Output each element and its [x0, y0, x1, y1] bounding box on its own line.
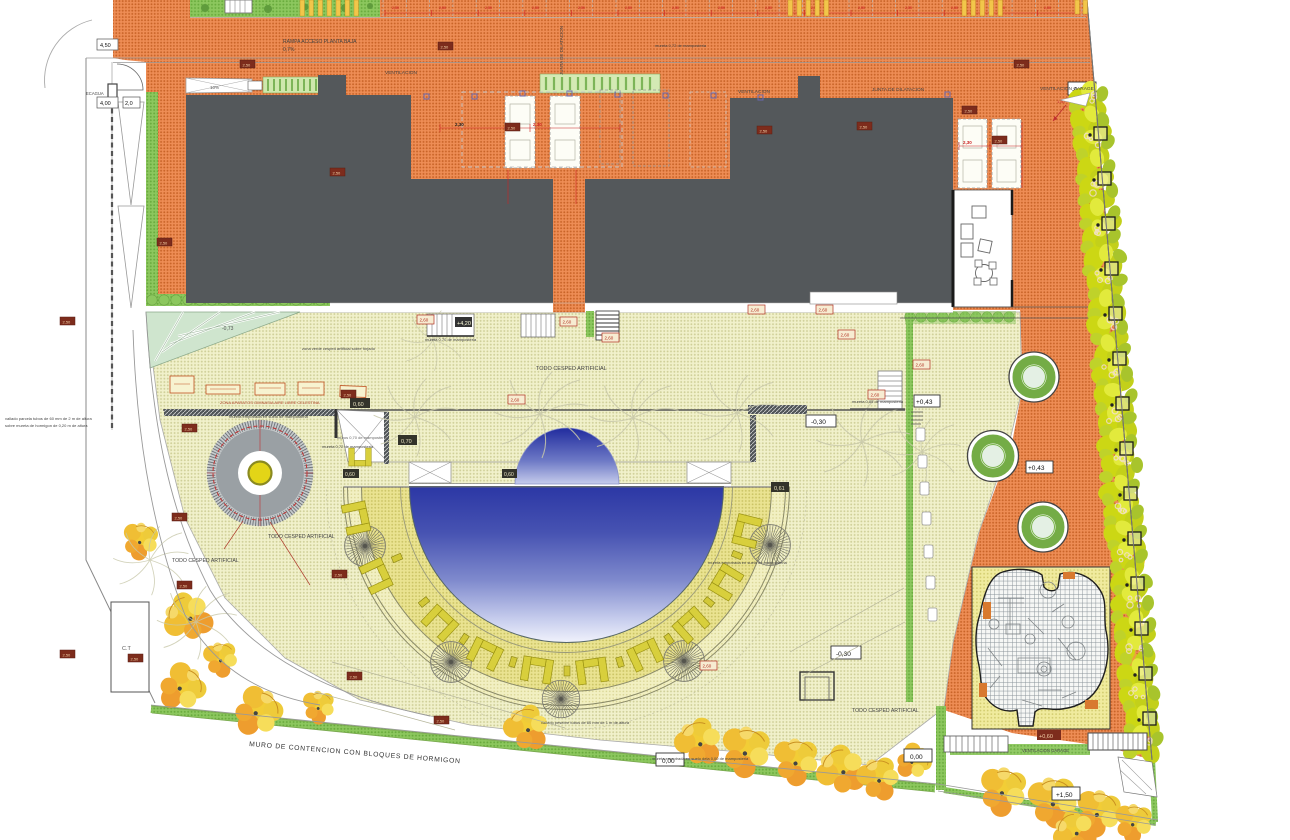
- svg-text:2,30: 2,30: [963, 140, 972, 145]
- svg-text:2,50: 2,50: [718, 6, 725, 10]
- svg-text:vallado parcela tubos de 60 mm: vallado parcela tubos de 60 mm de 2 m de…: [5, 416, 92, 421]
- svg-text:-0,73: -0,73: [222, 326, 234, 332]
- svg-text:mureta 0,70 de mamposteria: mureta 0,70 de mamposteria: [425, 337, 477, 342]
- svg-text:2,50: 2,50: [995, 139, 1004, 144]
- svg-text:2,50: 2,50: [441, 45, 450, 50]
- svg-text:mureta 0,85 de mamposteria: mureta 0,85 de mamposteria: [852, 399, 904, 404]
- svg-text:mureta empotrada en suelo de m: mureta empotrada en suelo de mamposteria: [708, 560, 787, 565]
- svg-text:2,50: 2,50: [180, 584, 189, 589]
- svg-text:2,60: 2,60: [819, 308, 828, 313]
- svg-text:0,61: 0,61: [774, 486, 785, 492]
- svg-text:2,50: 2,50: [185, 427, 194, 432]
- svg-text:2,50: 2,50: [160, 241, 169, 246]
- svg-text:+0,60: +0,60: [1039, 734, 1053, 740]
- svg-text:0,7%: 0,7%: [283, 47, 295, 53]
- svg-text:2,50: 2,50: [63, 320, 72, 325]
- svg-text:C.T: C.T: [122, 646, 132, 652]
- svg-text:TODO CESPED ARTIFICIAL: TODO CESPED ARTIFICIAL: [852, 708, 919, 714]
- svg-text:2,50: 2,50: [63, 653, 72, 658]
- svg-text:2,50: 2,50: [508, 126, 517, 131]
- svg-text:0,00: 0,00: [910, 754, 923, 761]
- svg-text:2,50: 2,50: [131, 657, 140, 662]
- svg-text:zona verde cesped artificial s: zona verde cesped artificial sobre forja…: [302, 346, 376, 351]
- svg-text:RAMPA ACCESO PLANTA BAJA: RAMPA ACCESO PLANTA BAJA: [283, 39, 357, 45]
- svg-text:2,30: 2,30: [455, 122, 464, 127]
- svg-text:10%: 10%: [210, 85, 219, 90]
- svg-text:TODO CESPED ARTIFICIAL: TODO CESPED ARTIFICIAL: [536, 366, 607, 372]
- svg-text:2,60: 2,60: [916, 363, 925, 368]
- svg-text:0,60: 0,60: [345, 472, 355, 478]
- svg-text:4,50: 4,50: [100, 43, 111, 49]
- svg-text:2,60: 2,60: [751, 308, 760, 313]
- svg-text:2,50: 2,50: [485, 6, 492, 10]
- svg-text:2,50: 2,50: [965, 109, 974, 114]
- svg-text:2,50: 2,50: [860, 125, 869, 130]
- svg-text:ZONA APARATOS GIMNASIA AIRE LI: ZONA APARATOS GIMNASIA AIRE LIBRE CELEST…: [220, 400, 320, 405]
- svg-text:2,50: 2,50: [243, 63, 252, 68]
- svg-text:VENTILACION GARAGE: VENTILACION GARAGE: [1040, 86, 1094, 92]
- svg-text:2,50: 2,50: [765, 6, 772, 10]
- svg-text:2,60: 2,60: [563, 320, 572, 325]
- svg-text:2,50: 2,50: [858, 6, 865, 10]
- svg-text:2,60: 2,60: [871, 393, 880, 398]
- svg-text:VENTILACION GARAGE: VENTILACION GARAGE: [1022, 748, 1069, 753]
- svg-text:mureta empotrada en suelo dela: mureta empotrada en suelo dela 0,00 de m…: [652, 756, 749, 761]
- svg-text:4,00: 4,00: [100, 101, 111, 107]
- svg-text:2,60: 2,60: [605, 336, 614, 341]
- svg-text:-0,30: -0,30: [811, 419, 826, 426]
- svg-text:0,70: 0,70: [401, 439, 412, 445]
- svg-text:VENTILACION: VENTILACION: [738, 89, 771, 95]
- svg-text:2,30: 2,30: [533, 122, 542, 127]
- svg-text:ECAGUA: ECAGUA: [86, 91, 104, 96]
- svg-text:2,50: 2,50: [905, 6, 912, 10]
- svg-text:muros 0,70 de mamposteria: muros 0,70 de mamposteria: [337, 435, 388, 440]
- svg-text:2,50: 2,50: [532, 6, 539, 10]
- svg-text:+0,43: +0,43: [916, 399, 933, 406]
- svg-text:JUNTA DE DILATACION: JUNTA DE DILATACION: [872, 87, 925, 93]
- svg-text:JUNTA DE DILATACION: JUNTA DE DILATACION: [559, 26, 564, 75]
- svg-text:+4,20: +4,20: [457, 321, 471, 327]
- svg-text:VENTILACION: VENTILACION: [385, 70, 418, 76]
- svg-text:2,60: 2,60: [841, 333, 850, 338]
- svg-text:vallado pesebre tubos de 60 mm: vallado pesebre tubos de 60 mm de 1 m de…: [541, 720, 630, 725]
- svg-text:2,50: 2,50: [1017, 63, 1026, 68]
- svg-text:TODO CESPED ARTIFICIAL: TODO CESPED ARTIFICIAL: [268, 534, 335, 540]
- svg-text:2,50: 2,50: [350, 675, 359, 680]
- svg-text:2,50: 2,50: [335, 573, 344, 578]
- svg-text:TODO CESPED ARTIFICIAL: TODO CESPED ARTIFICIAL: [172, 558, 239, 564]
- svg-text:mureta 0,72 de mamposteria: mureta 0,72 de mamposteria: [322, 444, 374, 449]
- svg-text:+0,43: +0,43: [1028, 465, 1045, 472]
- svg-text:2,60: 2,60: [511, 398, 520, 403]
- svg-text:2,50: 2,50: [760, 129, 769, 134]
- svg-text:2,50: 2,50: [1044, 6, 1051, 10]
- svg-text:2,50: 2,50: [175, 516, 184, 521]
- svg-text:2,50: 2,50: [333, 171, 342, 176]
- svg-text:0,60: 0,60: [353, 402, 364, 408]
- svg-text:mureta 0,72 de mamposteria: mureta 0,72 de mamposteria: [655, 43, 707, 48]
- svg-text:2,50: 2,50: [344, 393, 353, 398]
- svg-text:2,50: 2,50: [437, 719, 446, 724]
- svg-text:2,60: 2,60: [703, 664, 712, 669]
- svg-text:+1,50: +1,50: [1056, 792, 1073, 799]
- svg-text:0,60: 0,60: [504, 472, 514, 478]
- svg-text:2,50: 2,50: [392, 6, 399, 10]
- svg-text:sobre mureta de hormigon de 0,: sobre mureta de hormigon de 0,20 m de al…: [5, 423, 88, 428]
- svg-text:2,50: 2,50: [578, 6, 585, 10]
- svg-text:2,50: 2,50: [672, 6, 679, 10]
- svg-text:2,60: 2,60: [420, 318, 429, 323]
- svg-text:2,0: 2,0: [125, 101, 133, 107]
- svg-text:mureta empotrada en suelo de m: mureta empotrada en suelo de mamposteria: [229, 414, 308, 419]
- svg-text:2,50: 2,50: [951, 6, 958, 10]
- svg-text:2,50: 2,50: [625, 6, 632, 10]
- svg-text:2,50: 2,50: [439, 6, 446, 10]
